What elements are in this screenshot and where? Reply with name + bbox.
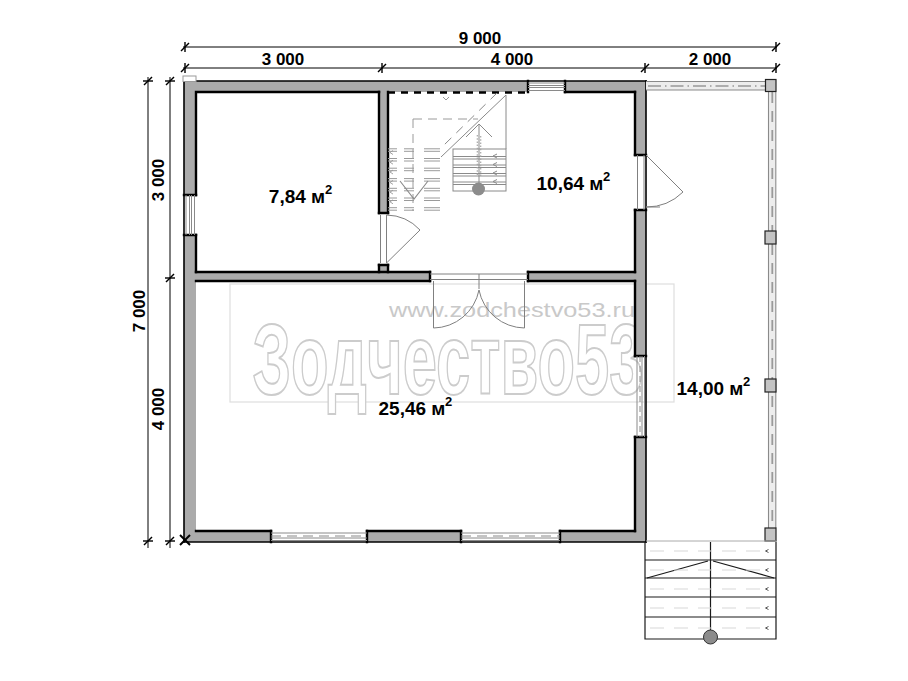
svg-text:7 000: 7 000 <box>130 290 149 333</box>
svg-text:2: 2 <box>445 394 452 409</box>
svg-text:4 000: 4 000 <box>149 388 168 431</box>
svg-text:2: 2 <box>603 169 610 184</box>
svg-text:2 000: 2 000 <box>689 50 732 69</box>
svg-text:3 000: 3 000 <box>149 159 168 202</box>
svg-text:2: 2 <box>325 182 332 197</box>
svg-text:10,64 м: 10,64 м <box>537 173 604 194</box>
svg-text:7,84 м: 7,84 м <box>269 186 325 207</box>
svg-text:4 000: 4 000 <box>491 50 534 69</box>
svg-text:25,46 м: 25,46 м <box>379 398 446 419</box>
svg-text:3 000: 3 000 <box>262 50 305 69</box>
svg-text:2: 2 <box>743 374 750 389</box>
svg-text:14,00 м: 14,00 м <box>677 378 744 399</box>
svg-text:9 000: 9 000 <box>459 29 502 48</box>
